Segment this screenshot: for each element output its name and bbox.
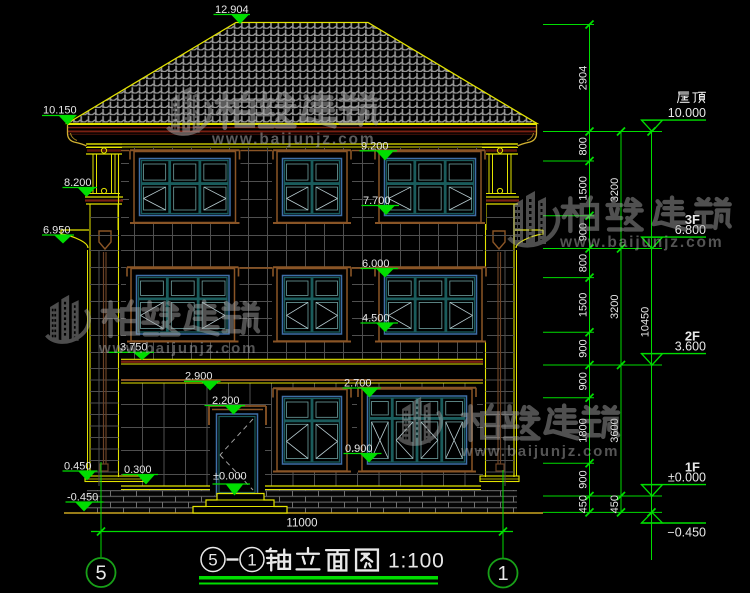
svg-text:3.600: 3.600 (675, 340, 706, 354)
svg-text:900: 900 (578, 470, 590, 488)
svg-text:800: 800 (578, 137, 590, 155)
svg-text:450: 450 (609, 495, 621, 513)
svg-text:1: 1 (247, 551, 256, 570)
svg-text:900: 900 (578, 372, 590, 390)
svg-text:900: 900 (578, 339, 590, 357)
svg-text:11000: 11000 (286, 518, 317, 530)
svg-text:450: 450 (578, 495, 590, 513)
svg-text:www.baijunjz.com: www.baijunjz.com (559, 234, 724, 251)
svg-text:1:100: 1:100 (388, 550, 445, 573)
svg-text:2904: 2904 (578, 66, 590, 90)
svg-text:www.baijunjz.com: www.baijunjz.com (211, 131, 376, 148)
svg-text:10.000: 10.000 (668, 106, 706, 120)
svg-text:www.baijunjz.com: www.baijunjz.com (460, 443, 619, 460)
svg-text:800: 800 (578, 254, 590, 272)
svg-text:10450: 10450 (640, 307, 652, 338)
svg-text:5: 5 (208, 551, 217, 570)
svg-text:±0.000: ±0.000 (668, 471, 706, 485)
svg-text:±0.000: ±0.000 (213, 471, 247, 483)
svg-text:−0.450: −0.450 (667, 525, 706, 539)
svg-text:1500: 1500 (578, 176, 590, 200)
svg-text:5: 5 (95, 563, 106, 585)
svg-text:1500: 1500 (578, 293, 590, 317)
svg-text:1: 1 (497, 563, 508, 585)
svg-text:www.baijunjz.com: www.baijunjz.com (98, 340, 257, 357)
svg-text:3200: 3200 (609, 295, 621, 319)
svg-text:10.150: 10.150 (43, 105, 77, 117)
